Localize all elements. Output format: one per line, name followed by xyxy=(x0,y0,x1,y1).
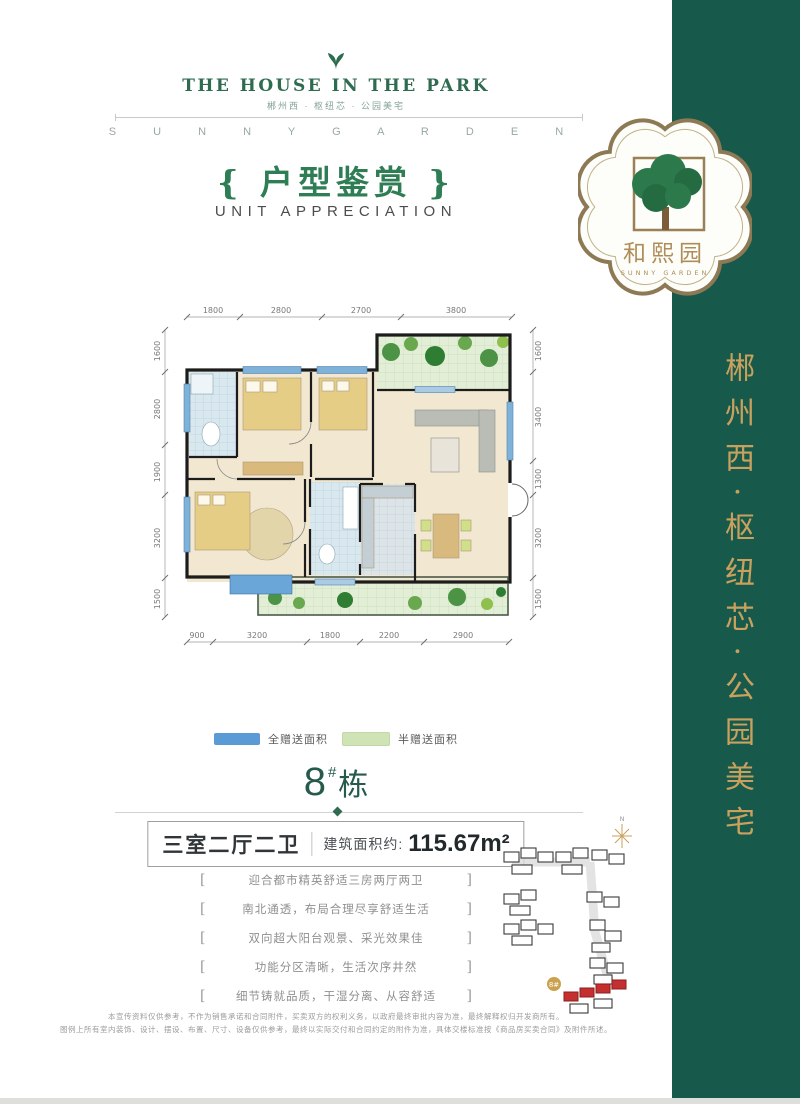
unit-info-box: 三室二厅二卫 建筑面积约: 115.67m² xyxy=(147,821,524,867)
svg-text:1500: 1500 xyxy=(153,589,162,609)
area-label: 建筑面积约: xyxy=(323,834,403,854)
site-plan-svg: 8# N xyxy=(492,812,657,1014)
header-divider xyxy=(115,117,583,118)
divider-ornament xyxy=(333,807,343,817)
svg-text:1900: 1900 xyxy=(153,462,162,482)
floor-plan-svg: 1800 2800 2700 3800 900 3200 1800 2200 2… xyxy=(115,282,585,667)
svg-text:3200: 3200 xyxy=(153,528,162,548)
svg-text:3200: 3200 xyxy=(247,631,267,640)
brand-tagline: 郴州西 · 枢纽芯 · 公园美宅 xyxy=(0,99,672,112)
brand-title: THE HOUSE IN THE PARK xyxy=(0,76,672,96)
legend-half-gift: 半赠送面积 xyxy=(342,731,458,747)
section-title-cn: { 户型鉴赏 } xyxy=(0,156,672,204)
legend-green-swatch xyxy=(342,732,390,746)
unit-layout: 三室二厅二卫 xyxy=(162,829,300,859)
compass-icon: N xyxy=(612,815,632,848)
svg-text:SUNNY GARDEN: SUNNY GARDEN xyxy=(621,269,710,277)
svg-text:3200: 3200 xyxy=(534,528,543,548)
svg-text:1600: 1600 xyxy=(534,341,543,361)
feature-item: [ 细节铸就品质，干湿分离、从容舒适 ] xyxy=(200,988,472,1004)
brand-medallion: 和熙园 SUNNY GARDEN xyxy=(578,112,752,302)
svg-text:3400: 3400 xyxy=(534,407,543,427)
feature-item: [ 南北通透，布局合理尽享舒适生活 ] xyxy=(200,901,472,917)
svg-text:N: N xyxy=(620,815,625,823)
disclaimer: 本宣传资料仅供参考，不作为销售承诺和合同附件，买卖双方的权利义务，以政府最终审批… xyxy=(0,1010,672,1036)
sprout-icon xyxy=(0,50,672,77)
sidebar-vertical-slogan: 郴州西·枢纽芯·公园美宅 xyxy=(714,352,758,851)
legend-full-gift: 全赠送面积 xyxy=(214,731,328,747)
main-content: THE HOUSE IN THE PARK 郴州西 · 枢纽芯 · 公园美宅 S… xyxy=(0,0,672,1104)
svg-text:2200: 2200 xyxy=(379,631,399,640)
building-title: 8#栋 xyxy=(0,760,672,805)
medallion-svg: 和熙园 SUNNY GARDEN xyxy=(578,112,752,302)
plan-legend: 全赠送面积 半赠送面积 xyxy=(0,731,672,747)
svg-text:2800: 2800 xyxy=(153,399,162,419)
svg-text:1800: 1800 xyxy=(203,306,223,315)
svg-text:1600: 1600 xyxy=(153,341,162,361)
feature-item: [ 双向超大阳台观景、采光效果佳 ] xyxy=(200,930,472,946)
svg-text:900: 900 xyxy=(189,631,204,640)
svg-text:3800: 3800 xyxy=(446,306,466,315)
feature-item: [ 迎合都市精英舒适三房两厅两卫 ] xyxy=(200,872,472,888)
info-divider xyxy=(311,832,312,856)
section-title-en: UNIT APPRECIATION xyxy=(0,203,672,220)
svg-text:1300: 1300 xyxy=(534,469,543,489)
brand-banner: S U N N Y G A R D E N xyxy=(0,126,672,138)
legend-blue-swatch xyxy=(214,733,260,745)
svg-text:和熙园: 和熙园 xyxy=(623,241,707,267)
svg-text:2700: 2700 xyxy=(351,306,371,315)
feature-item: [ 功能分区清晰，生活次序井然 ] xyxy=(200,959,472,975)
svg-text:2800: 2800 xyxy=(271,306,291,315)
svg-text:2900: 2900 xyxy=(453,631,473,640)
site-highlight-label: 8# xyxy=(547,977,561,991)
svg-text:8#: 8# xyxy=(549,981,559,989)
room-fills xyxy=(187,335,510,615)
site-plan: 8# N xyxy=(492,812,657,1014)
svg-text:1800: 1800 xyxy=(320,631,340,640)
flyer-page: 郴州西·枢纽芯·公园美宅 THE HOUSE IN THE PARK 郴州西 ·… xyxy=(0,0,800,1104)
floor-plan: 1800 2800 2700 3800 900 3200 1800 2200 2… xyxy=(115,282,585,667)
svg-text:1500: 1500 xyxy=(534,589,543,609)
